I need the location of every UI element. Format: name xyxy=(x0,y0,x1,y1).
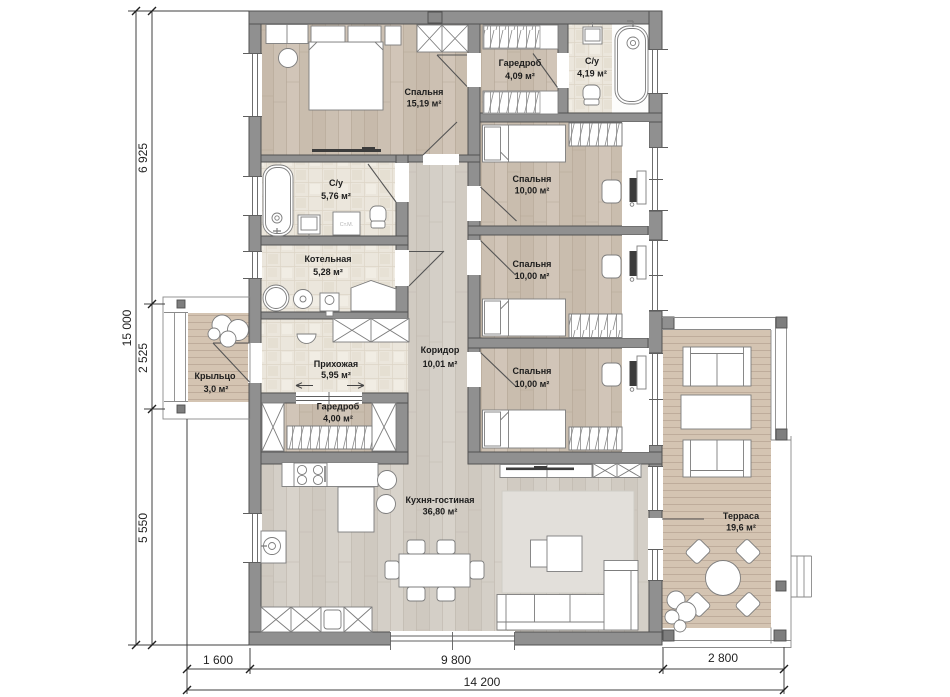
svg-text:6 925: 6 925 xyxy=(136,143,150,173)
svg-text:5,95 м²: 5,95 м² xyxy=(321,370,351,380)
svg-text:4,19 м²: 4,19 м² xyxy=(577,69,607,79)
svg-text:Крыльцо: Крыльцо xyxy=(195,371,236,381)
svg-text:Терраса: Терраса xyxy=(723,511,760,521)
svg-text:10,00 м²: 10,00 м² xyxy=(515,379,550,389)
svg-text:3,0 м²: 3,0 м² xyxy=(204,384,229,394)
svg-text:Спальня: Спальня xyxy=(513,174,552,184)
svg-text:С/у: С/у xyxy=(585,56,599,66)
svg-text:Спальня: Спальня xyxy=(513,259,552,269)
svg-text:9 800: 9 800 xyxy=(441,653,471,667)
svg-text:14 200: 14 200 xyxy=(464,675,501,689)
svg-text:10,00 м²: 10,00 м² xyxy=(515,271,550,281)
svg-text:Кухня-гостиная: Кухня-гостиная xyxy=(406,495,475,505)
svg-text:Коридор: Коридор xyxy=(421,345,460,355)
svg-text:Спальня: Спальня xyxy=(405,87,444,97)
svg-text:2 525: 2 525 xyxy=(136,343,150,373)
svg-text:5,76 м²: 5,76 м² xyxy=(321,191,351,201)
svg-text:5,28 м²: 5,28 м² xyxy=(313,267,343,277)
svg-text:5 550: 5 550 xyxy=(136,513,150,543)
svg-text:2 800: 2 800 xyxy=(708,651,738,665)
svg-text:Котельная: Котельная xyxy=(304,254,351,264)
svg-text:15 000: 15 000 xyxy=(120,309,134,346)
svg-text:15,19 м²: 15,19 м² xyxy=(407,99,442,109)
svg-text:10,01 м²: 10,01 м² xyxy=(423,359,458,369)
svg-text:Гаредроб: Гаредроб xyxy=(499,58,542,68)
svg-text:Гаредроб: Гаредроб xyxy=(317,402,360,412)
svg-text:10,00 м²: 10,00 м² xyxy=(515,186,550,196)
svg-text:С/у: С/у xyxy=(329,178,343,188)
svg-text:36,80 м²: 36,80 м² xyxy=(423,507,458,517)
svg-text:Прихожая: Прихожая xyxy=(314,359,358,369)
svg-text:4,00 м²: 4,00 м² xyxy=(323,414,353,424)
svg-text:1 600: 1 600 xyxy=(203,653,233,667)
svg-text:19,6 м²: 19,6 м² xyxy=(726,523,756,533)
svg-text:4,09 м²: 4,09 м² xyxy=(505,71,535,81)
svg-text:Ст.М.: Ст.М. xyxy=(340,222,354,228)
svg-text:Спальня: Спальня xyxy=(513,366,552,376)
